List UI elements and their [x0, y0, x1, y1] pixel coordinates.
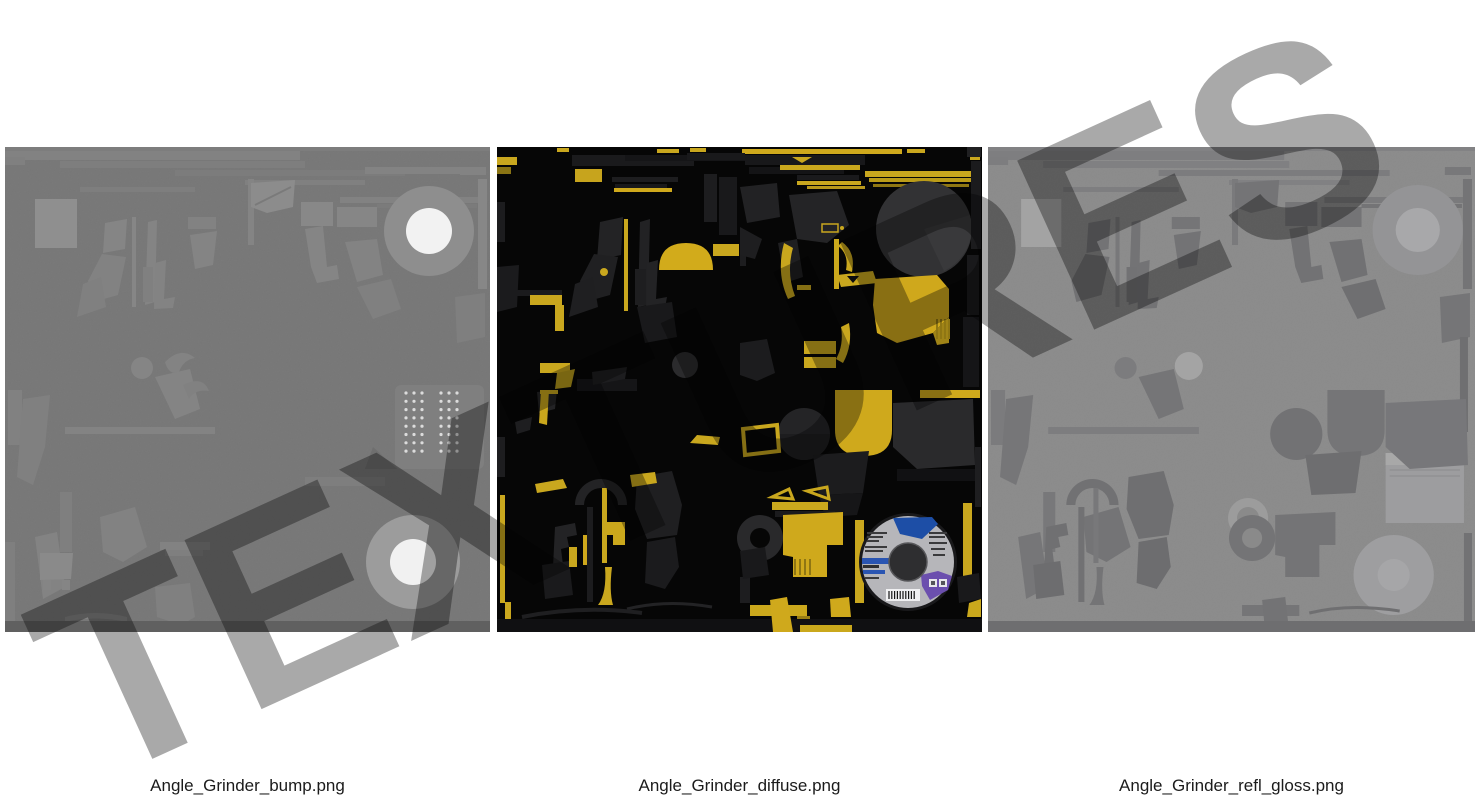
texture-filename-bump: Angle_Grinder_bump.png: [5, 776, 490, 796]
diffuse-texture-image: [497, 147, 982, 632]
texture-panel-refl-gloss: Angle_Grinder_refl_gloss.png: [988, 147, 1475, 632]
texture-preview-page: Angle_Grinder_bump.png Angle_Grinder_dif…: [0, 0, 1480, 800]
bump-texture-image: [5, 147, 490, 632]
texture-panel-bump: Angle_Grinder_bump.png: [5, 147, 490, 632]
texture-panel-diffuse: Angle_Grinder_diffuse.png: [497, 147, 982, 632]
texture-filename-refl-gloss: Angle_Grinder_refl_gloss.png: [988, 776, 1475, 796]
texture-filename-diffuse: Angle_Grinder_diffuse.png: [497, 776, 982, 796]
refl-gloss-texture-image: [988, 147, 1475, 632]
